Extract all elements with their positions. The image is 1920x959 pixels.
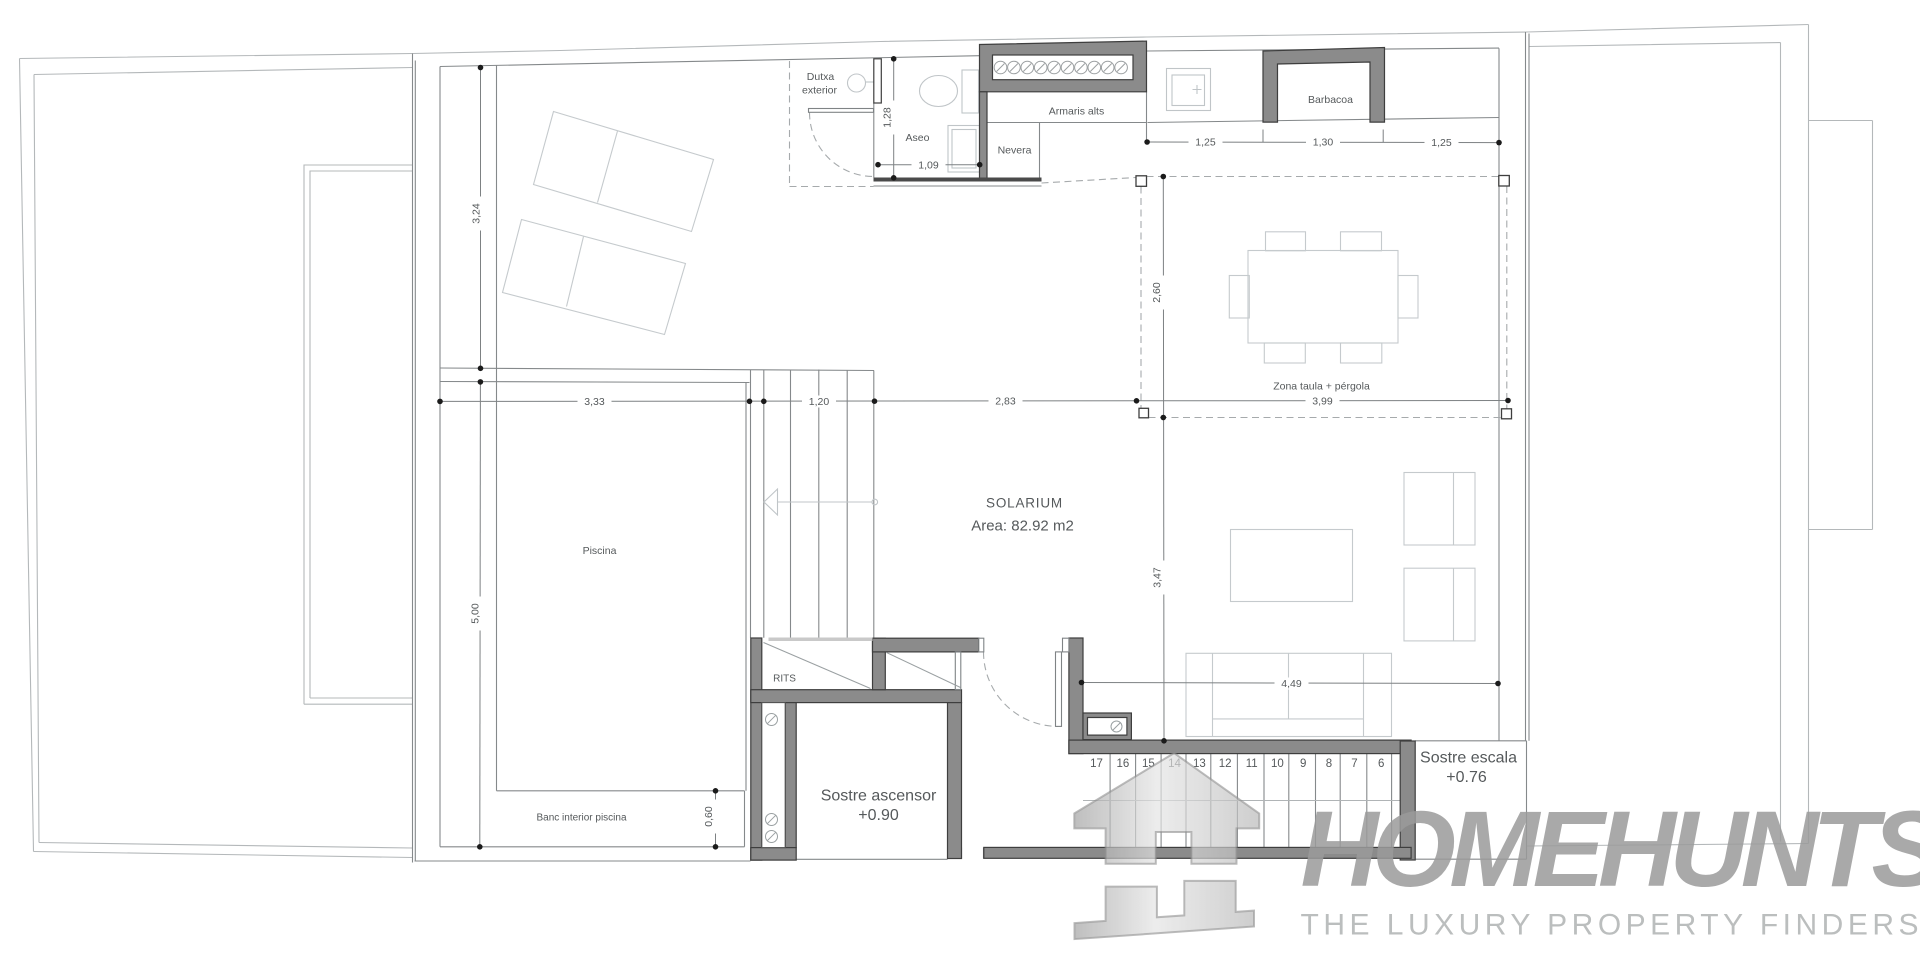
svg-text:16: 16	[1117, 758, 1130, 770]
svg-text:+0.76: +0.76	[1446, 769, 1487, 786]
svg-text:1,09: 1,09	[918, 160, 939, 172]
svg-text:SOLARIUM: SOLARIUM	[986, 496, 1063, 511]
svg-text:+0.90: +0.90	[858, 807, 899, 824]
svg-text:3,99: 3,99	[1312, 396, 1333, 408]
svg-text:10: 10	[1271, 758, 1284, 770]
svg-text:4,49: 4,49	[1281, 678, 1302, 690]
svg-text:Piscina: Piscina	[583, 545, 617, 557]
svg-text:6: 6	[1378, 758, 1384, 770]
svg-text:Sostre ascensor: Sostre ascensor	[821, 788, 937, 805]
svg-text:2,83: 2,83	[995, 396, 1016, 408]
svg-text:1,28: 1,28	[882, 107, 894, 128]
svg-text:1,30: 1,30	[1313, 137, 1334, 149]
svg-text:7: 7	[1351, 758, 1357, 770]
svg-text:Aseo: Aseo	[906, 132, 930, 144]
svg-text:5,00: 5,00	[470, 603, 482, 624]
svg-text:12: 12	[1219, 758, 1232, 770]
svg-text:3,47: 3,47	[1152, 567, 1164, 588]
svg-text:8: 8	[1326, 758, 1332, 770]
svg-text:1,25: 1,25	[1195, 137, 1216, 149]
svg-text:0,60: 0,60	[703, 806, 715, 827]
svg-text:1,20: 1,20	[809, 396, 830, 408]
svg-text:Banc interior piscina: Banc interior piscina	[536, 813, 626, 824]
svg-text:Nevera: Nevera	[998, 145, 1032, 157]
svg-text:1,25: 1,25	[1431, 137, 1452, 149]
svg-text:Barbacoa: Barbacoa	[1308, 94, 1353, 106]
svg-text:3,33: 3,33	[584, 396, 605, 408]
svg-text:2,60: 2,60	[1151, 282, 1163, 303]
svg-text:Area: 82.92 m2: Area: 82.92 m2	[971, 518, 1074, 535]
svg-text:HOMEHUNTS: HOMEHUNTS	[1301, 788, 1920, 909]
svg-text:3,24: 3,24	[471, 203, 483, 224]
svg-text:Armaris alts: Armaris alts	[1049, 106, 1104, 118]
svg-text:RITS: RITS	[773, 674, 796, 685]
svg-text:Sostre escala: Sostre escala	[1420, 750, 1517, 767]
svg-text:11: 11	[1246, 758, 1258, 770]
svg-text:9: 9	[1300, 758, 1306, 770]
svg-text:17: 17	[1090, 758, 1103, 770]
svg-text:exterior: exterior	[802, 85, 838, 97]
svg-text:Zona taula + pérgola: Zona taula + pérgola	[1273, 381, 1370, 393]
svg-text:Dutxa: Dutxa	[807, 71, 835, 83]
svg-text:THE LUXURY PROPERTY FINDERS: THE LUXURY PROPERTY FINDERS	[1301, 909, 1919, 942]
